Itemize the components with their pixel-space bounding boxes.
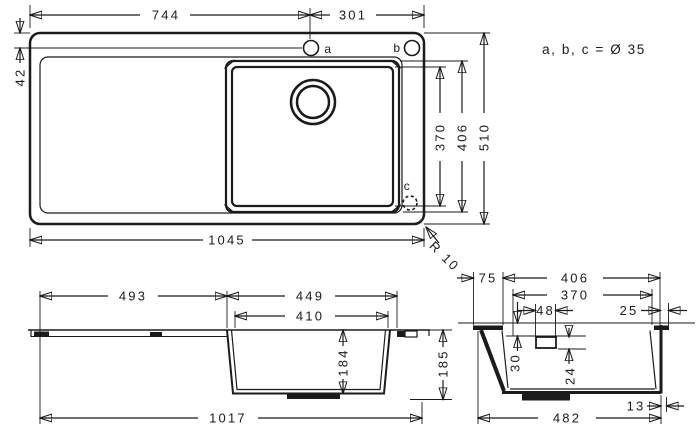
bowl-outer-outline bbox=[226, 61, 399, 212]
dim-370-section: 370 bbox=[513, 288, 652, 303]
dim-406-section: 406 bbox=[503, 271, 660, 286]
drain-boss-section bbox=[522, 394, 570, 401]
rim-cut-left bbox=[473, 326, 503, 331]
dim-24: 24 bbox=[563, 328, 578, 385]
dim-label-42: 42 bbox=[13, 68, 28, 87]
dim-label-30: 30 bbox=[508, 353, 523, 372]
dim-label-75: 75 bbox=[479, 271, 498, 286]
dim-label-370: 370 bbox=[433, 123, 448, 151]
wall-left-outer bbox=[481, 330, 504, 391]
dim-370-top: 370 bbox=[433, 67, 448, 206]
corner-radius-callout: R 10 bbox=[426, 227, 463, 274]
dim-label-1017: 1017 bbox=[209, 411, 247, 426]
dim-185: 185 bbox=[436, 330, 451, 400]
bowl-corner-ticks bbox=[225, 60, 401, 213]
bracket-right-solid bbox=[397, 331, 405, 337]
dim-label-48: 48 bbox=[536, 303, 555, 318]
hole-b-label: b bbox=[393, 41, 400, 55]
dim-label-406: 406 bbox=[455, 123, 470, 151]
dim-48: 48 bbox=[517, 303, 573, 318]
bowl-inner-outline bbox=[232, 67, 393, 206]
mounting-clip-mid bbox=[150, 332, 162, 337]
sink-dimension-drawing: a b c 744 bbox=[0, 0, 700, 439]
mounting-clip-left bbox=[34, 332, 49, 337]
dim-label-493: 493 bbox=[119, 289, 147, 304]
dim-301: 301 bbox=[310, 8, 424, 23]
dim-406-top: 406 bbox=[455, 61, 470, 212]
dim-label-1045: 1045 bbox=[208, 233, 246, 248]
drain-boss-side bbox=[287, 394, 340, 400]
side-view-extension-lines bbox=[40, 291, 452, 424]
dim-25: 25 bbox=[620, 303, 687, 318]
dim-label-24: 24 bbox=[563, 366, 578, 385]
dim-label-184: 184 bbox=[336, 348, 351, 376]
dim-label-25: 25 bbox=[620, 303, 639, 318]
dim-449: 449 bbox=[227, 289, 397, 304]
technical-drawing-page: a b c 744 bbox=[0, 0, 700, 439]
dim-label-744: 744 bbox=[152, 8, 180, 23]
bowl-profile-inner bbox=[232, 330, 386, 390]
dim-42: 42 bbox=[13, 18, 28, 86]
tap-hole-a bbox=[304, 41, 319, 56]
hole-a-label: a bbox=[324, 42, 331, 56]
dim-30: 30 bbox=[508, 302, 523, 372]
dim-75: 75 bbox=[457, 271, 497, 286]
side-view: 493 449 410 184 185 1017 bbox=[28, 289, 452, 426]
dim-label-370-section: 370 bbox=[561, 288, 589, 303]
dim-label-406-section: 406 bbox=[561, 271, 589, 286]
hole-c-label: c bbox=[404, 179, 411, 193]
dim-493: 493 bbox=[40, 289, 227, 304]
dim-label-185: 185 bbox=[436, 349, 451, 377]
section-view: 75 406 370 48 25 30 bbox=[457, 271, 695, 426]
bracket-right-outline bbox=[405, 331, 417, 337]
dim-410: 410 bbox=[235, 309, 388, 324]
hole-diameter-note: a, b, c = Ø 35 bbox=[542, 42, 646, 57]
dim-label-449: 449 bbox=[296, 289, 324, 304]
dim-1017: 1017 bbox=[40, 411, 422, 426]
dim-label-410: 410 bbox=[296, 309, 324, 324]
tap-hole-b bbox=[405, 41, 420, 56]
dim-13: 13 bbox=[627, 399, 684, 414]
radius-r10-label: R 10 bbox=[427, 238, 463, 274]
dim-744: 744 bbox=[30, 8, 310, 23]
dim-1045: 1045 bbox=[30, 233, 424, 248]
dim-184: 184 bbox=[336, 330, 351, 394]
dim-label-510: 510 bbox=[477, 123, 492, 151]
dim-label-13: 13 bbox=[627, 399, 646, 414]
top-view: a b c 744 bbox=[13, 5, 646, 274]
dim-510: 510 bbox=[477, 33, 492, 224]
bowl-profile-outer bbox=[227, 330, 390, 394]
top-view-extension-lines bbox=[14, 5, 490, 247]
sink-recess-outline bbox=[40, 57, 402, 213]
wall-right-inner bbox=[650, 331, 656, 390]
drain-inner-circle bbox=[297, 86, 329, 118]
tap-hole-c-optional bbox=[403, 196, 417, 210]
overflow-box bbox=[536, 337, 556, 348]
dim-label-482: 482 bbox=[553, 411, 581, 426]
dim-label-301: 301 bbox=[339, 8, 367, 23]
